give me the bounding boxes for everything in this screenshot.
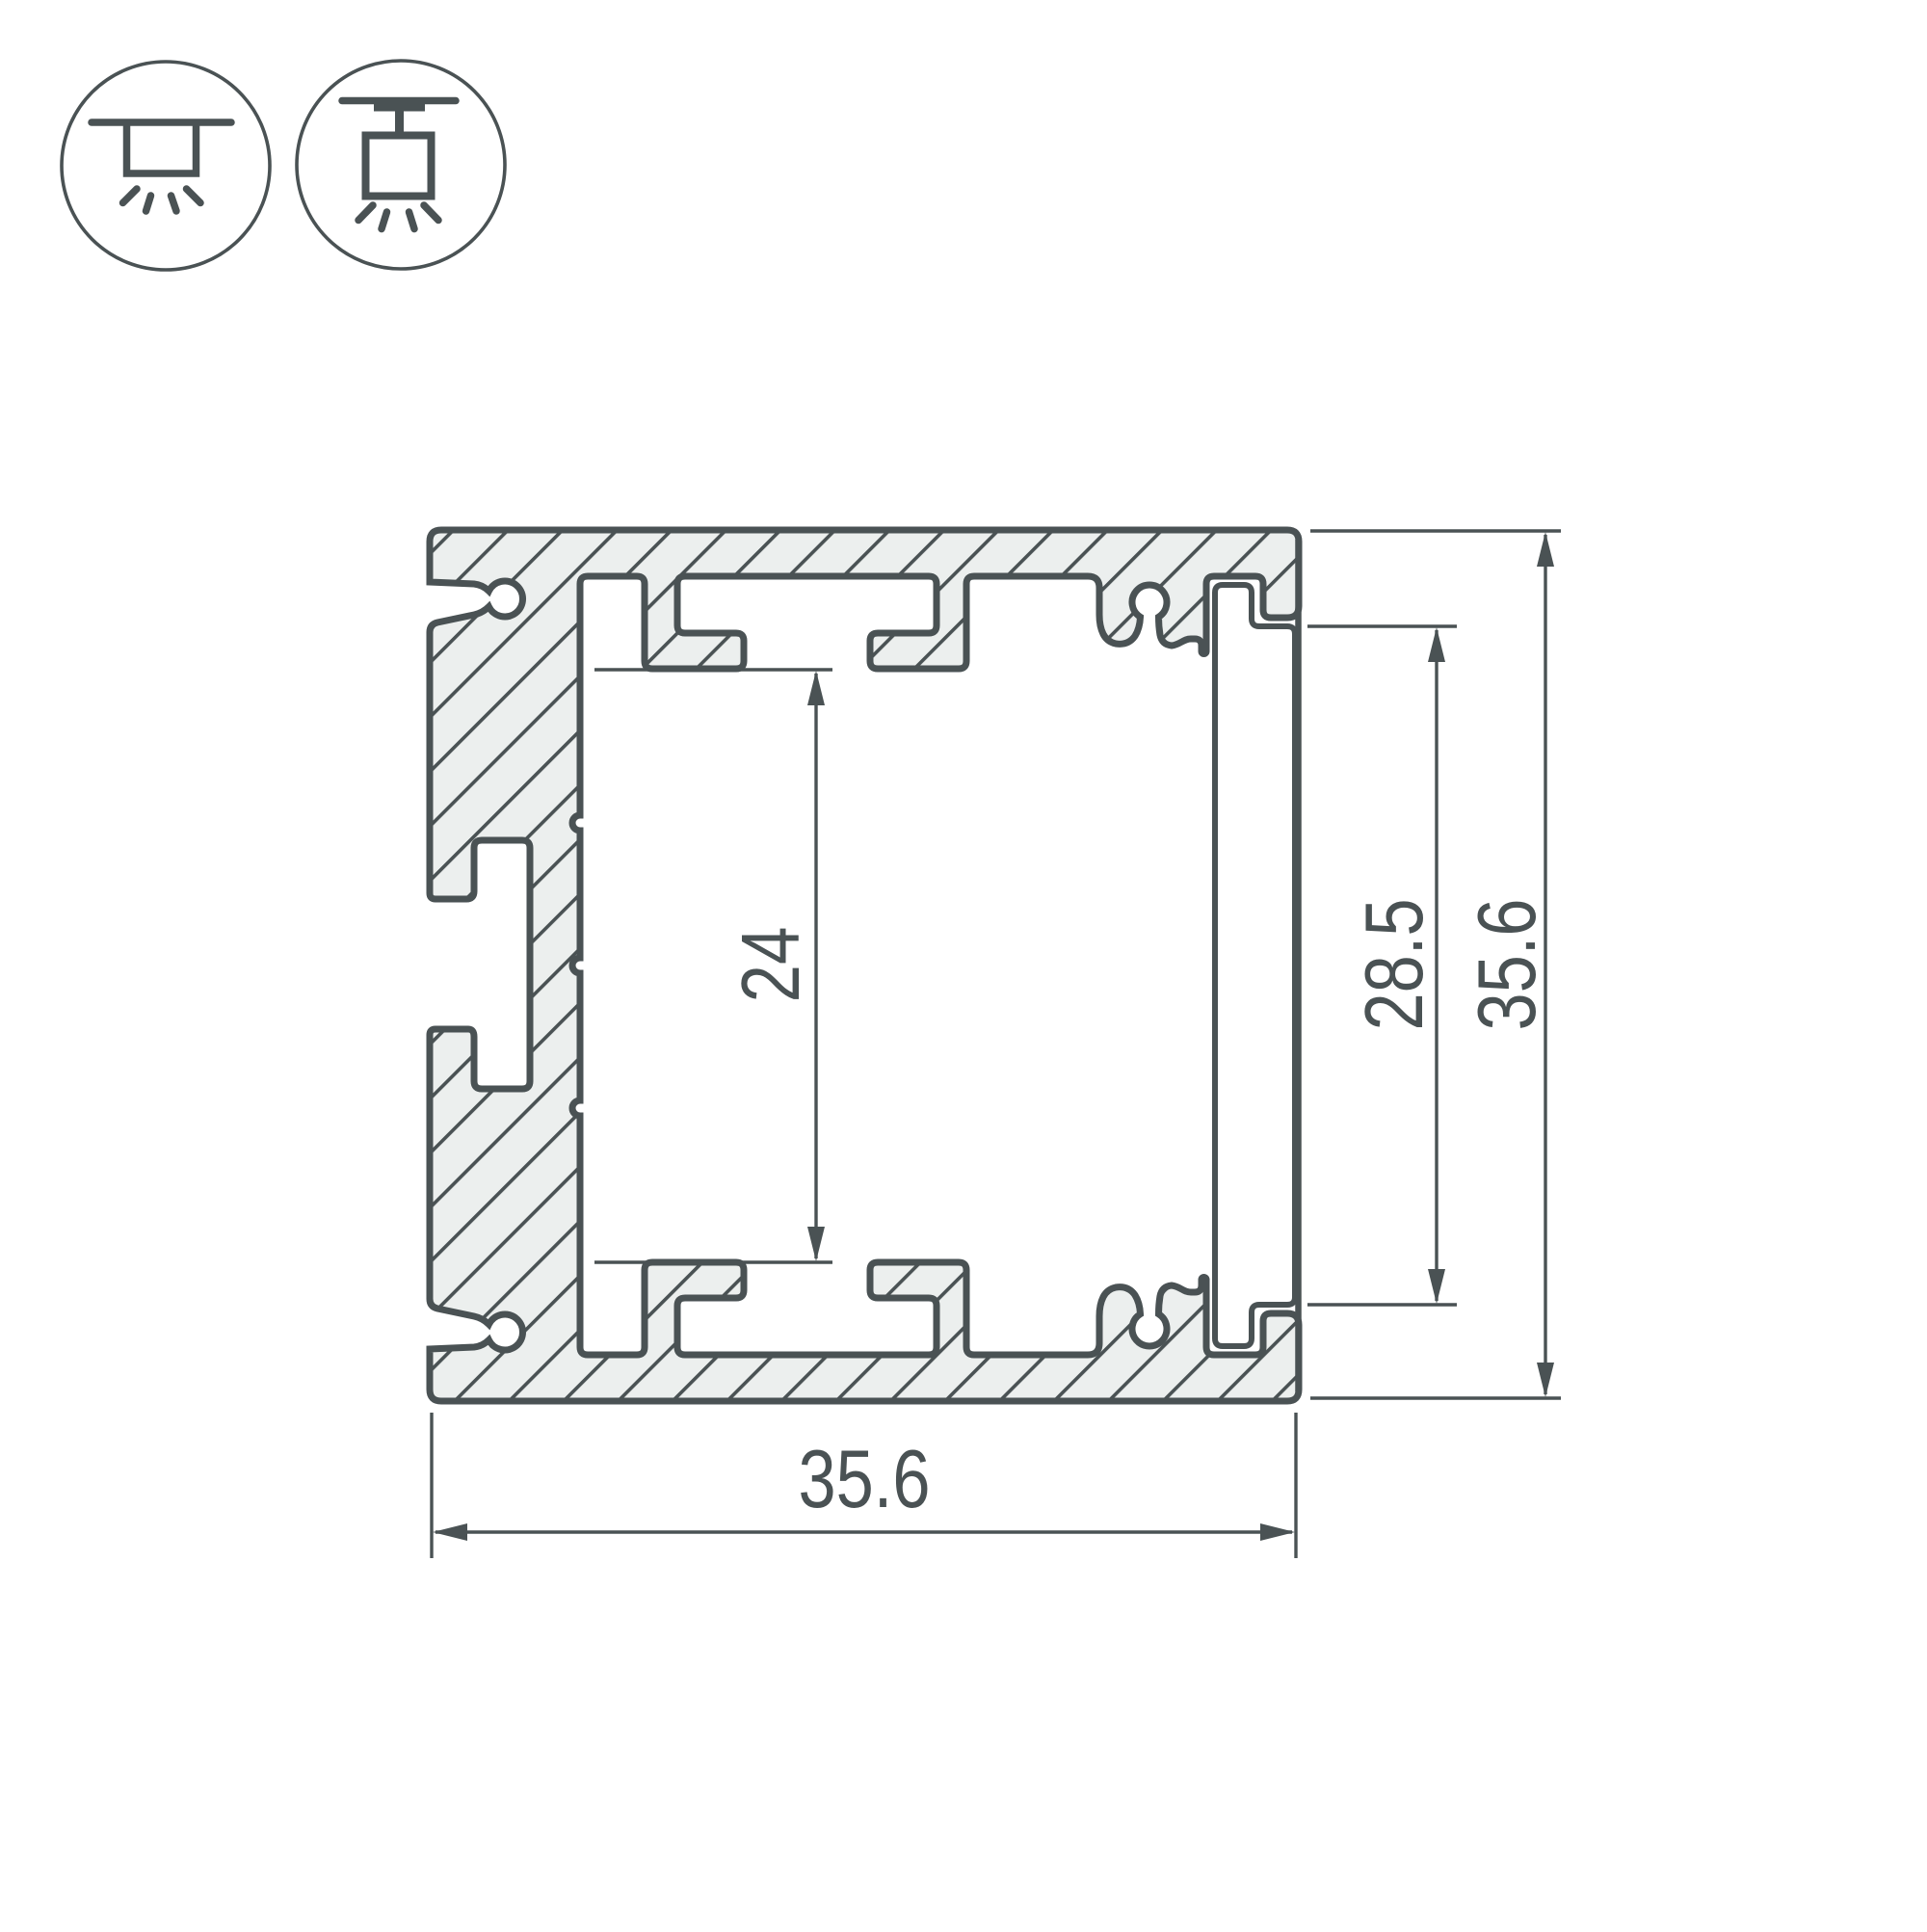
svg-text:35.6: 35.6	[1462, 899, 1553, 1031]
svg-text:35.6: 35.6	[799, 1434, 931, 1525]
svg-text:24: 24	[726, 927, 817, 1003]
svg-text:28.5: 28.5	[1349, 899, 1440, 1031]
